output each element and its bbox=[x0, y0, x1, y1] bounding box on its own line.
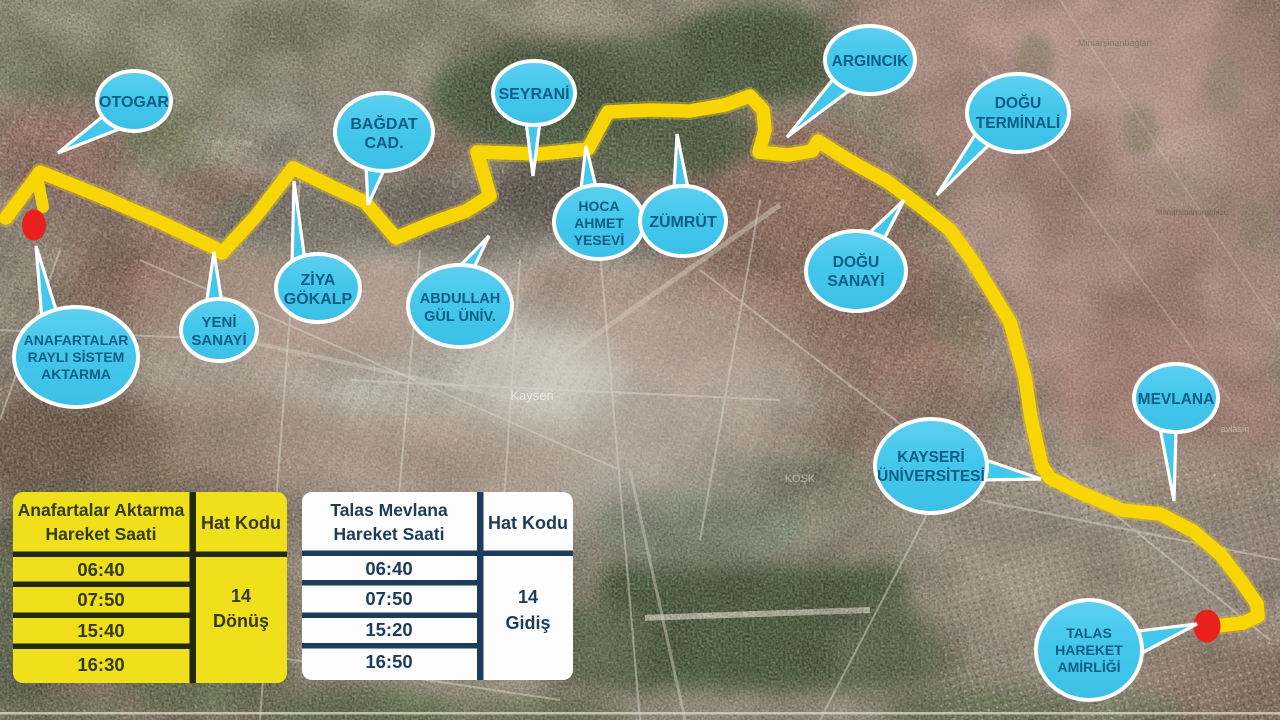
svg-text:HOCA: HOCA bbox=[578, 198, 619, 214]
svg-text:Hareket Saati: Hareket Saati bbox=[334, 524, 445, 544]
svg-text:DOĞU: DOĞU bbox=[833, 253, 880, 271]
svg-text:SANAYİ: SANAYİ bbox=[191, 332, 246, 349]
svg-text:14: 14 bbox=[518, 587, 538, 607]
svg-text:07:50: 07:50 bbox=[77, 589, 124, 610]
svg-text:ARGINCIK: ARGINCIK bbox=[832, 53, 909, 70]
svg-text:avlasın: avlasın bbox=[1221, 424, 1250, 434]
svg-text:TERMİNALİ: TERMİNALİ bbox=[976, 115, 1060, 132]
svg-text:15:40: 15:40 bbox=[77, 620, 124, 641]
svg-text:KAYSERİ: KAYSERİ bbox=[897, 449, 964, 466]
svg-text:ZİYA: ZİYA bbox=[301, 271, 336, 289]
svg-text:ZÜMRÜT: ZÜMRÜT bbox=[649, 212, 717, 231]
svg-text:Gidiş: Gidiş bbox=[505, 613, 550, 633]
svg-text:HAREKET: HAREKET bbox=[1055, 642, 1123, 658]
svg-text:GÖKALP: GÖKALP bbox=[284, 289, 353, 308]
svg-text:Hat Kodu: Hat Kodu bbox=[201, 513, 281, 533]
svg-text:YESEVİ: YESEVİ bbox=[574, 232, 625, 248]
svg-text:AMİRLİĞİ: AMİRLİĞİ bbox=[1058, 658, 1121, 675]
svg-text:TALAS: TALAS bbox=[1066, 625, 1112, 641]
svg-text:ÜNİVERSİTESİ: ÜNİVERSİTESİ bbox=[877, 468, 985, 485]
svg-text:Hareket Saati: Hareket Saati bbox=[46, 524, 157, 544]
svg-text:Mimarsinanorganize: Mimarsinanorganize bbox=[1156, 208, 1229, 217]
svg-text:ANAFARTALAR: ANAFARTALAR bbox=[24, 332, 129, 348]
svg-text:Anafartalar Aktarma: Anafartalar Aktarma bbox=[18, 500, 185, 520]
svg-text:Kayseri: Kayseri bbox=[510, 388, 553, 403]
svg-text:Talas Mevlana: Talas Mevlana bbox=[330, 500, 448, 520]
svg-text:BAĞDAT: BAĞDAT bbox=[350, 114, 417, 133]
svg-text:MEVLANA: MEVLANA bbox=[1138, 391, 1215, 408]
svg-text:15:20: 15:20 bbox=[365, 619, 412, 640]
svg-text:KÖŞK: KÖŞK bbox=[785, 473, 816, 485]
svg-text:AHMET: AHMET bbox=[574, 215, 624, 231]
svg-text:OTOGAR: OTOGAR bbox=[99, 94, 169, 111]
svg-text:CAD.: CAD. bbox=[364, 135, 403, 152]
svg-text:DOĞU: DOĞU bbox=[995, 94, 1042, 112]
svg-text:YENİ ŞAFAK: YENİ ŞAFAK bbox=[207, 139, 254, 148]
svg-text:Hat Kodu: Hat Kodu bbox=[488, 513, 568, 533]
svg-text:07:50: 07:50 bbox=[365, 588, 412, 609]
svg-text:06:40: 06:40 bbox=[365, 558, 412, 579]
svg-text:AKTARMA: AKTARMA bbox=[41, 366, 111, 382]
svg-text:YENİ: YENİ bbox=[201, 314, 236, 331]
svg-text:Dönüş: Dönüş bbox=[213, 611, 269, 631]
svg-text:16:30: 16:30 bbox=[77, 654, 124, 675]
svg-text:ABDULLAH: ABDULLAH bbox=[420, 291, 501, 307]
svg-text:16:50: 16:50 bbox=[365, 651, 412, 672]
svg-text:Mimarsinanbağları: Mimarsinanbağları bbox=[1078, 38, 1152, 48]
svg-text:GÜL ÜNİV.: GÜL ÜNİV. bbox=[424, 308, 496, 325]
svg-text:SANAYİ: SANAYİ bbox=[827, 273, 884, 290]
svg-text:14: 14 bbox=[231, 586, 251, 606]
svg-text:RAYLI SİSTEM: RAYLI SİSTEM bbox=[28, 349, 125, 365]
svg-text:06:40: 06:40 bbox=[77, 559, 124, 580]
svg-text:SEYRANİ: SEYRANİ bbox=[498, 85, 569, 103]
